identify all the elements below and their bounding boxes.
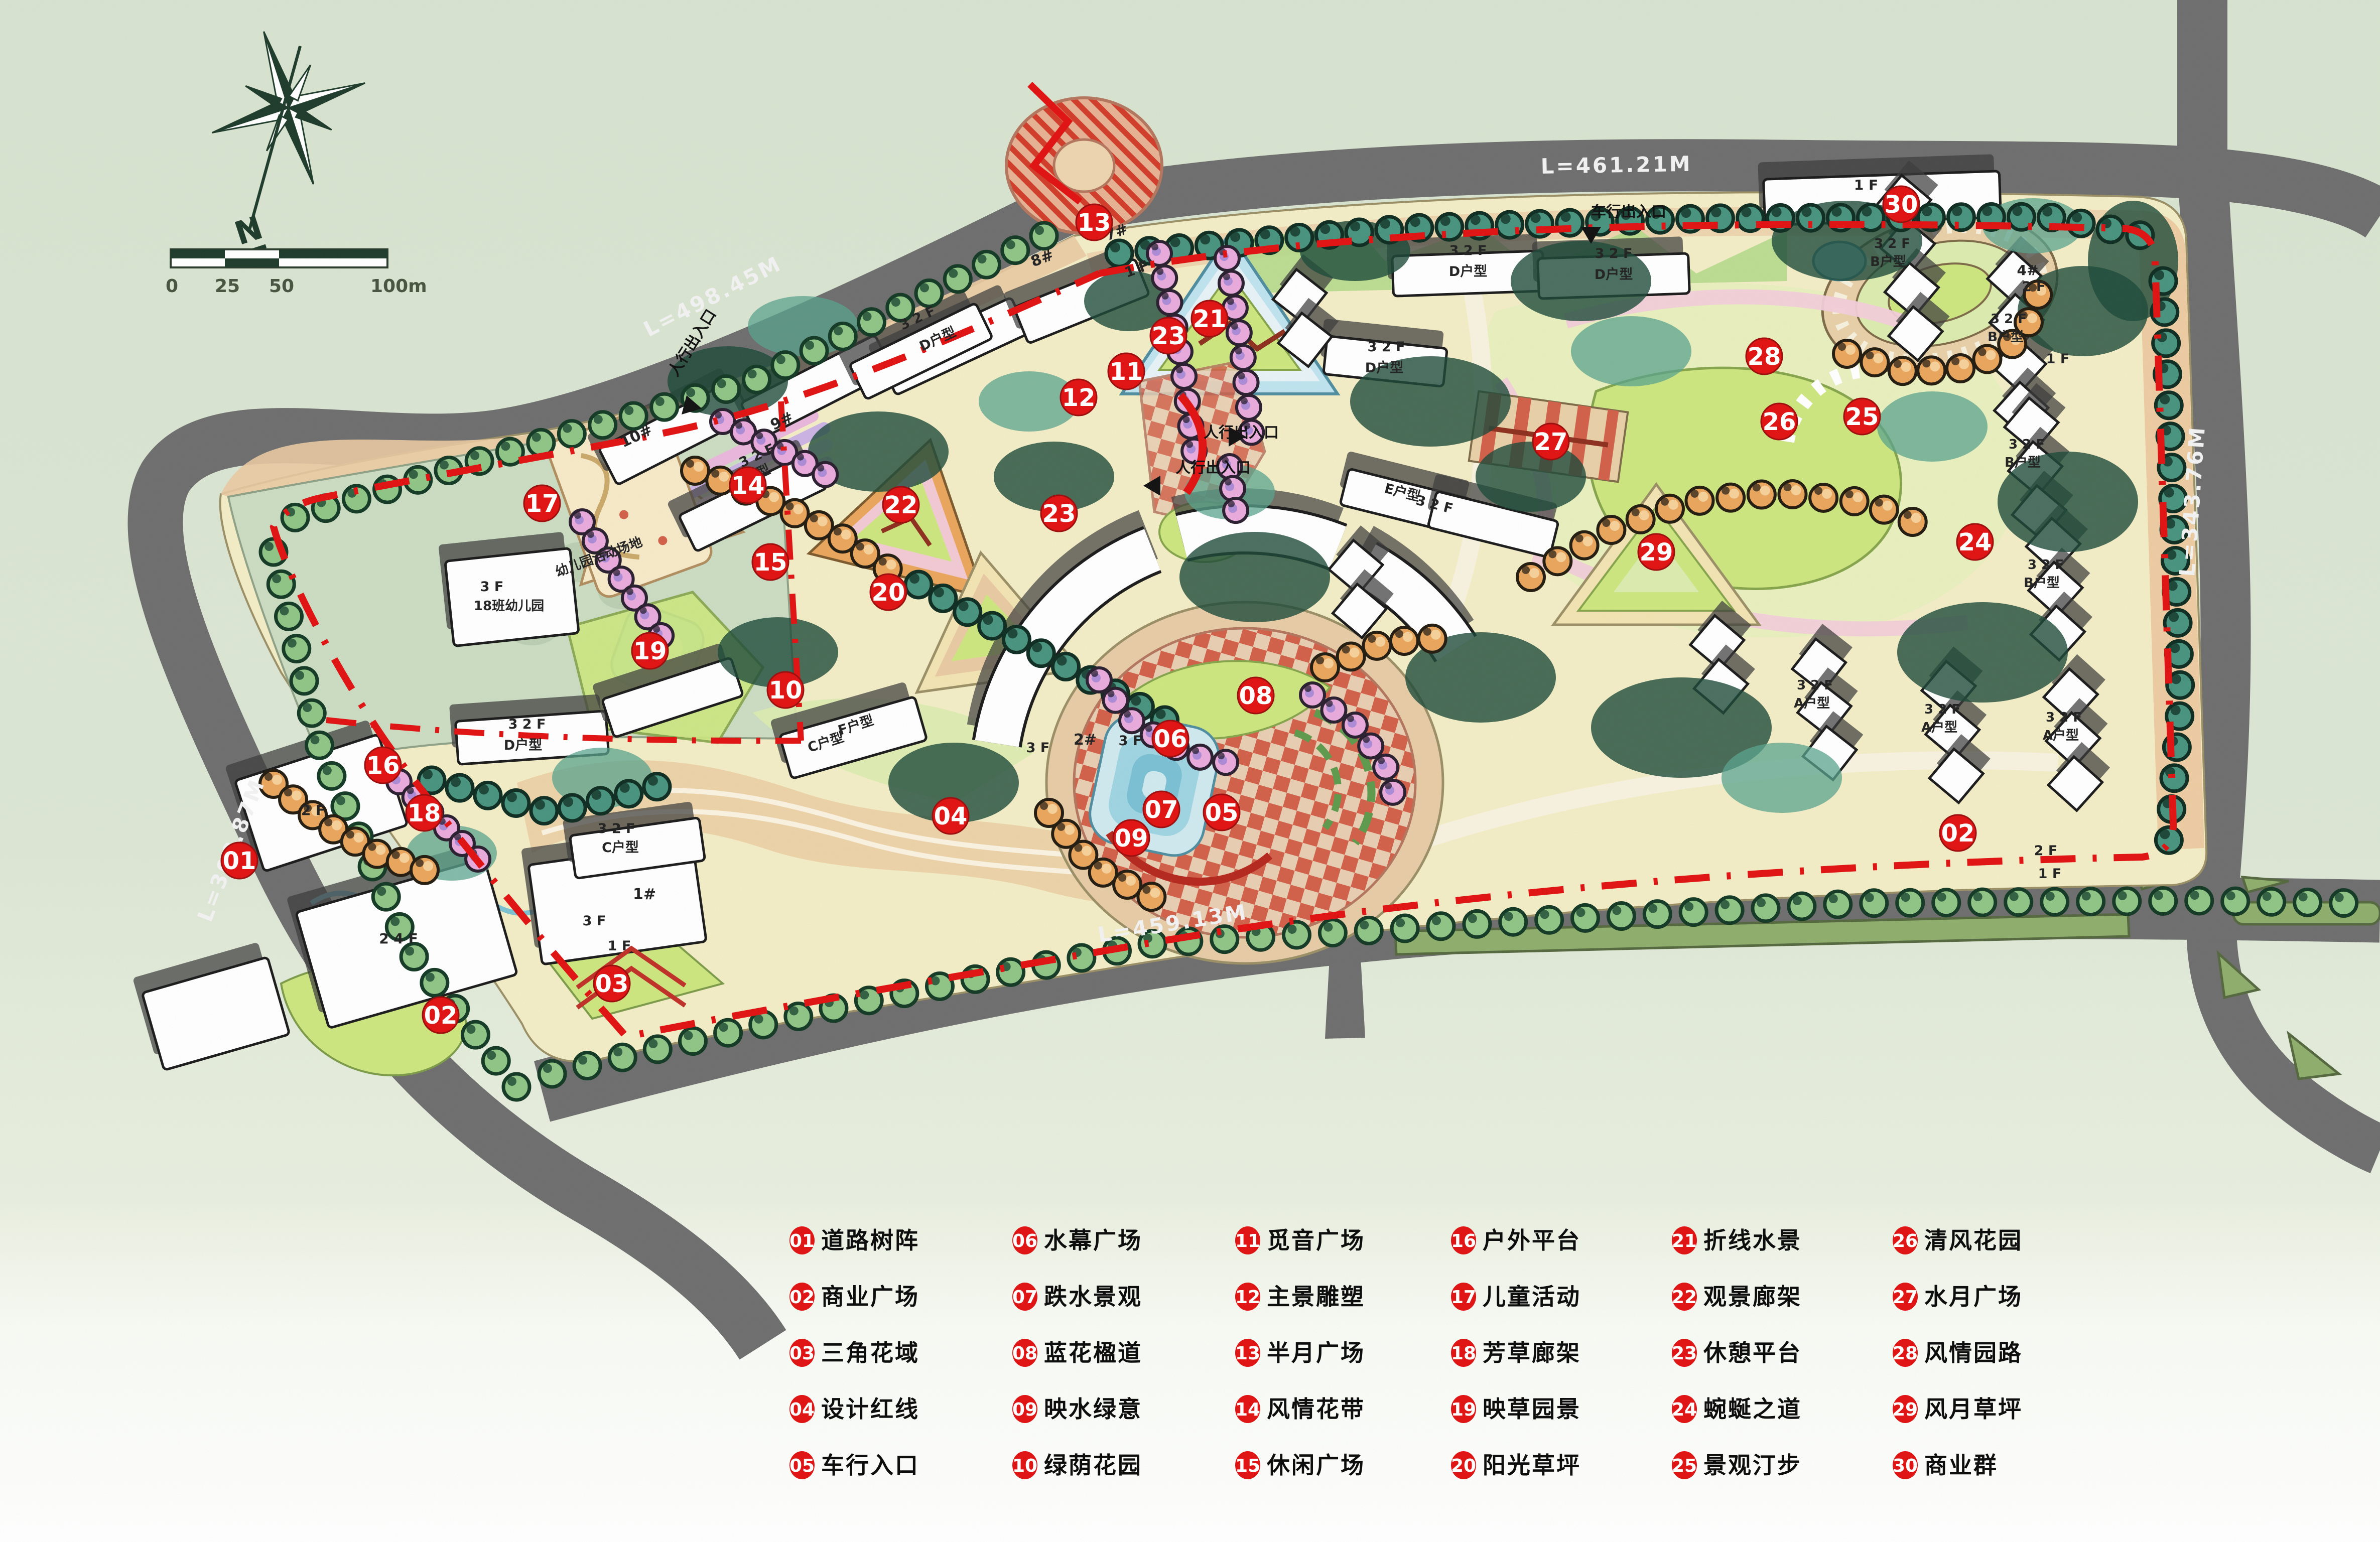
site-plan-drawing: L=498.45ML=461.21ML=459.13ML=308.87ML=34…: [0, 0, 2380, 1542]
paper-noise-overlay: [0, 0, 2380, 1542]
master-plan-canvas: L=498.45ML=461.21ML=459.13ML=308.87ML=34…: [0, 0, 2380, 1542]
